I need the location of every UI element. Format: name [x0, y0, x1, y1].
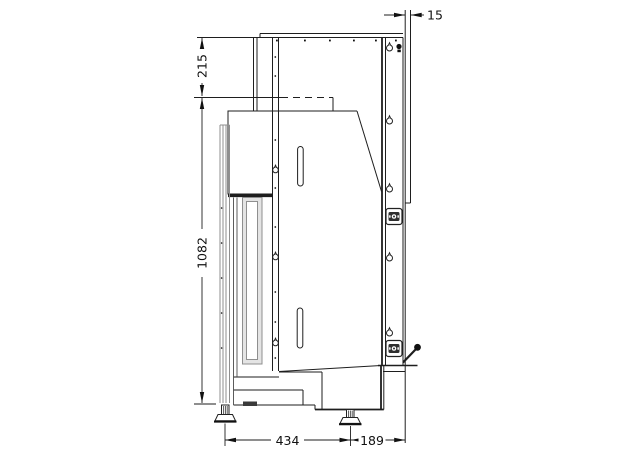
fastener-dot	[396, 44, 401, 52]
dimension-label-15: 15	[427, 8, 443, 23]
dimension-label-434: 434	[276, 433, 300, 448]
front-plate	[273, 38, 279, 372]
unit-outline	[197, 34, 403, 410]
appliance-side-view-drawing: 215 1082 15 434 189	[0, 0, 624, 460]
dimension-wall-offset: 15	[384, 8, 443, 23]
front-plate-keyholes	[273, 165, 279, 346]
latch-upper	[386, 209, 402, 225]
top-panel	[197, 34, 403, 38]
dimension-depth-front: 434	[225, 424, 351, 449]
rear-frame-bar	[382, 38, 403, 367]
leveling-foot-front	[214, 405, 237, 422]
upper-air-box	[228, 111, 273, 194]
lower-slot-handle	[297, 308, 303, 348]
dimension-body-height: 1082	[194, 98, 216, 404]
dimension-top-section: 215	[194, 38, 254, 98]
dimension-label-189: 189	[360, 433, 384, 448]
latch-lower	[386, 341, 402, 357]
upper-slot-handle	[298, 147, 304, 187]
wall-mount-rail	[405, 10, 410, 443]
base-section	[234, 366, 384, 410]
leveling-foot-rear	[339, 410, 362, 425]
dimension-depth-rear: 189	[351, 433, 406, 448]
dimension-label-1082: 1082	[195, 237, 210, 269]
flue-collar	[254, 38, 334, 112]
frame-keyholes	[387, 43, 393, 336]
technical-drawing-canvas: 215 1082 15 434 189	[0, 0, 624, 460]
door-lever	[404, 344, 421, 362]
dimension-label-215: 215	[195, 54, 210, 78]
foot-mount-strip	[243, 402, 257, 407]
door-glass-inner	[247, 202, 258, 360]
firebox-slant-edge	[357, 111, 382, 192]
door-layers	[220, 125, 262, 405]
top-panel-rivets	[276, 40, 397, 42]
